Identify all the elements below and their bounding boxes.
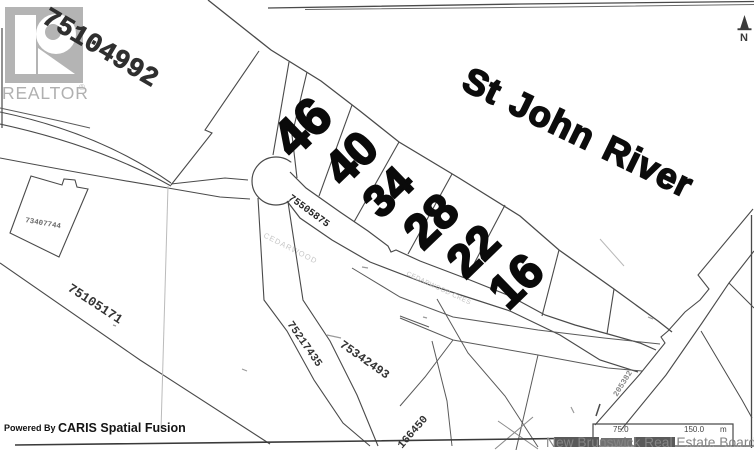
svg-text:REALTOR: REALTOR [2, 83, 89, 103]
svg-text:m: m [720, 425, 727, 434]
svg-text:New Brunswick Real Estate Boar: New Brunswick Real Estate Board [546, 435, 754, 450]
svg-text:CARIS Spatial Fusion: CARIS Spatial Fusion [58, 421, 186, 435]
svg-text:N: N [740, 32, 748, 44]
svg-text:®: ® [79, 83, 85, 92]
svg-text:75.0: 75.0 [613, 425, 629, 434]
svg-text:Powered By: Powered By [4, 423, 56, 433]
svg-text:150.0: 150.0 [684, 425, 705, 434]
